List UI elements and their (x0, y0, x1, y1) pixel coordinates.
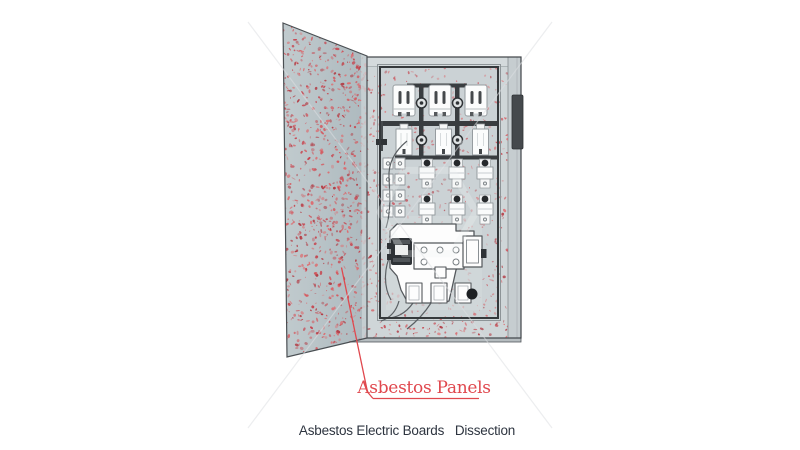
asbestos-board-figure: Asbestos Panels Asbestos Electric Boards… (0, 0, 800, 450)
cabinet-hinge-handle (512, 95, 523, 149)
large-fuse (393, 85, 415, 117)
square-port (435, 267, 446, 278)
large-fuse (429, 85, 451, 117)
image-caption: Asbestos Electric Boards Dissection (299, 423, 515, 438)
fuse-row-middle (396, 124, 489, 155)
knob (467, 289, 478, 300)
switch-mechanism (387, 224, 487, 303)
screw-plate (414, 243, 464, 269)
door-edge (361, 54, 367, 340)
large-fuse (465, 85, 487, 117)
fuse-carrier (436, 124, 452, 155)
fuse-carrier (473, 124, 489, 155)
fuse-row-top (393, 85, 487, 117)
cabinet-door (281, 21, 369, 358)
mechanism-feet (406, 283, 471, 303)
asbestos-panels-label: Asbestos Panels (357, 378, 490, 398)
